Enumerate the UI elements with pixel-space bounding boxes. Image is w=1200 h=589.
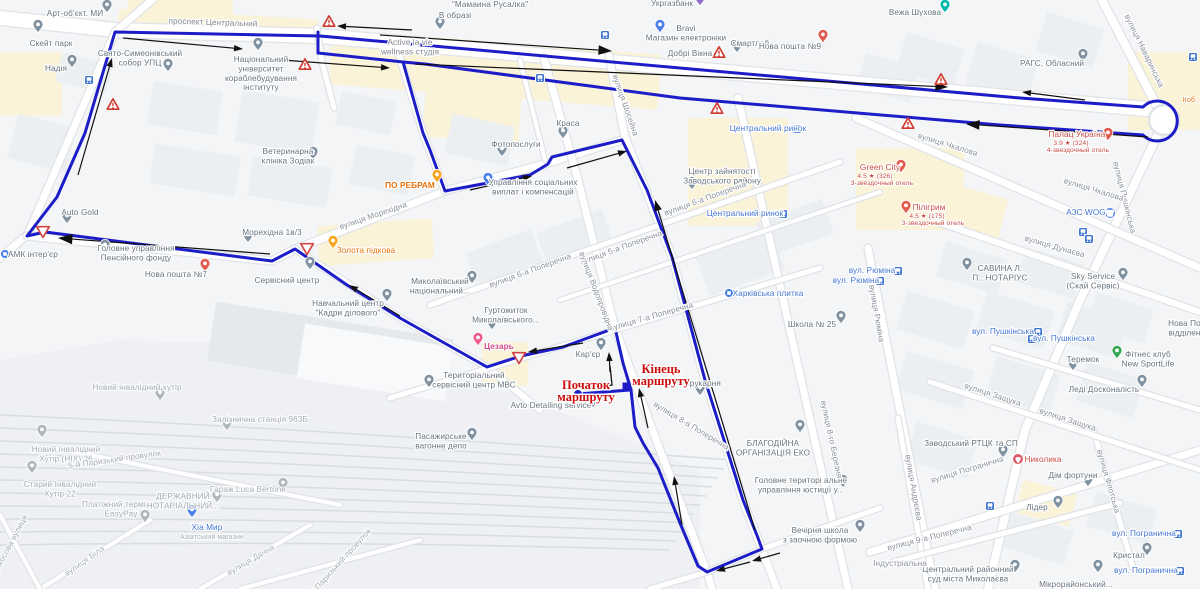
commercial-zone xyxy=(0,52,62,116)
map-label: вул. Пушкінська xyxy=(972,327,1034,336)
map-label: Укргазбанк xyxy=(651,0,693,8)
map-label: Управління соціальнихвиплат і компенсаці… xyxy=(488,178,577,196)
warning-roadwork-icon xyxy=(902,118,914,128)
transit-stop-icon[interactable] xyxy=(85,76,94,85)
poi-pin-dot xyxy=(1056,499,1060,503)
warning-roadwork-icon xyxy=(107,99,119,109)
bus-wheel xyxy=(988,507,990,509)
bus-glyph xyxy=(988,503,993,507)
exclamation-dot xyxy=(112,107,114,109)
bus-wheel xyxy=(1087,240,1089,242)
direction-arrow-head xyxy=(617,150,627,156)
bus-glyph xyxy=(87,77,92,81)
poi-pin-dot xyxy=(438,20,442,24)
map-label: Школа № 25 xyxy=(788,320,837,329)
map-label: Хіа Мир xyxy=(192,523,223,532)
poi-pin-dot xyxy=(965,261,969,265)
poi-pin-dot xyxy=(1140,378,1144,382)
poi-pin[interactable] xyxy=(795,419,805,433)
map-label: Нова пошта №7 xyxy=(145,270,208,279)
transit-stop-icon[interactable] xyxy=(986,502,995,511)
map-label: Миколаївськийнаціональний... xyxy=(410,277,470,295)
street-label: вулиця 7-а Поперечна xyxy=(608,300,694,333)
poi-pin-dot xyxy=(470,431,474,435)
poi-pin-dot xyxy=(1106,131,1110,135)
building-block xyxy=(896,291,975,350)
exclamation-dot xyxy=(718,55,720,57)
bus-glyph xyxy=(1087,236,1092,240)
poi-pin-dot xyxy=(385,292,389,296)
bus-glyph xyxy=(1191,54,1196,58)
map-label: вул. Погранична xyxy=(1112,529,1176,538)
bus-wheel xyxy=(87,81,89,83)
bus-wheel xyxy=(881,282,883,284)
map-label: Головне територі альнеуправління юстиції… xyxy=(755,476,848,494)
poi-pin[interactable] xyxy=(940,0,950,13)
poi-pin-dot xyxy=(1145,546,1149,550)
direction-arrow-head xyxy=(606,352,612,361)
map-label: Ветеринарнаклініка Зодіак xyxy=(262,147,315,165)
poi-pin[interactable] xyxy=(253,37,263,51)
poi-pin-dot xyxy=(427,378,431,382)
poi-pin-dot xyxy=(435,173,439,177)
poi-pin[interactable] xyxy=(836,310,846,324)
shop-glyph xyxy=(3,252,7,256)
transit-stop-icon[interactable] xyxy=(601,31,610,40)
poi-pin-dot xyxy=(70,58,74,62)
poi-pin[interactable] xyxy=(1093,559,1103,573)
poi-pin-dot xyxy=(143,513,147,517)
map-label: Пасажирськевагонне депо xyxy=(415,432,467,450)
poi-pin-dot xyxy=(599,341,603,345)
poi-pin-dot xyxy=(904,204,908,208)
map-label: Вежа Шухова xyxy=(889,8,942,17)
map-label: 3-звездочный отель xyxy=(851,179,914,187)
bus-wheel xyxy=(896,272,898,274)
map-label: 4.5 ★ (326) xyxy=(857,172,892,180)
map-label: Цезарь xyxy=(484,342,514,351)
bus-wheel xyxy=(1191,58,1193,60)
map-label: 3-звездочный отель xyxy=(902,219,965,227)
wog-glyph: W xyxy=(1107,211,1113,217)
poi-pin[interactable] xyxy=(473,332,483,346)
poi-pin-dot xyxy=(821,33,825,37)
map-screenshot: ♥W Арт-об'єкт. МИпроспект ЦентральнийСке… xyxy=(0,0,1200,589)
map-label: Леді Досконалість xyxy=(1069,385,1140,394)
heart-glyph: ♥ xyxy=(1016,458,1020,464)
warning-roadwork-icon xyxy=(713,47,725,57)
map-label: Гараж Luca Bertone xyxy=(210,485,286,494)
poi-pin-dot xyxy=(256,41,260,45)
poi-pin[interactable] xyxy=(33,19,43,33)
poi-pin-dot xyxy=(470,274,474,278)
poi-pin[interactable] xyxy=(1118,267,1128,281)
poi-pin[interactable] xyxy=(163,58,173,72)
transit-stop-icon[interactable] xyxy=(1085,235,1094,244)
poi-pin-dot xyxy=(476,336,480,340)
map-label: Теремок xyxy=(1067,355,1100,364)
fuel-station-icon[interactable]: W xyxy=(1105,208,1116,219)
poi-pin-dot xyxy=(798,423,802,427)
exclamation-dot xyxy=(328,24,330,26)
poi-pin-dot xyxy=(658,23,662,27)
map-label: Заводський РТЦК та СП xyxy=(924,439,1018,448)
map-label: вул. Погранична xyxy=(1114,566,1178,575)
map-label: Сервісний центр xyxy=(255,276,320,285)
bus-wheel xyxy=(1181,572,1183,574)
exclamation-dot xyxy=(940,82,942,84)
direction-arrow-shaft xyxy=(609,361,610,372)
poi-pin-body xyxy=(695,0,705,6)
map-label: Нова пошта №9 xyxy=(759,42,822,51)
route-start-label: Початокмаршруту xyxy=(557,378,615,404)
map-label: Азіатський магазин xyxy=(180,533,244,541)
poi-pin-dot xyxy=(561,129,565,133)
poi-pin-dot xyxy=(30,464,34,468)
map-label: Центральний районнийсуд міста Миколаєва xyxy=(922,565,1013,583)
poi-pin-dot xyxy=(839,314,843,318)
map-label: ГуртожитокМиколаївського... xyxy=(472,306,540,324)
poi-pin-dot xyxy=(36,23,40,27)
poi-pin-dot xyxy=(1001,448,1005,452)
map-label: Мікрорайонський... xyxy=(1039,580,1113,589)
map-label: ДЕРЖАВНИЙНОТАРІАЛЬНИЙ... xyxy=(147,490,220,510)
poi-pin-body xyxy=(940,0,950,13)
heart-badge-icon[interactable]: ♥ xyxy=(1013,454,1024,465)
map-label: Центральний ринок xyxy=(707,209,784,218)
poi-pin[interactable] xyxy=(596,337,606,351)
building-block xyxy=(147,81,223,135)
map-label: ПО РЕБРАМ xyxy=(385,181,435,190)
map-label: 3.9 ★ (324) xyxy=(1053,139,1088,147)
poi-pin-dot xyxy=(331,239,335,243)
map-label: Добрі Вікна xyxy=(668,49,713,58)
shop-glyph xyxy=(727,291,731,295)
map-label: Палац Україна xyxy=(1049,130,1106,139)
bus-glyph xyxy=(896,268,901,272)
bus-wheel xyxy=(1081,233,1083,235)
map-label: Фотопослуги xyxy=(491,140,540,149)
warning-roadwork-icon xyxy=(323,16,335,26)
map-label: В образі xyxy=(439,11,471,20)
warning-roadwork-icon xyxy=(299,59,311,69)
poi-pin[interactable] xyxy=(818,29,828,43)
street-label: Індустріальна xyxy=(873,559,927,568)
poi-pin[interactable] xyxy=(655,19,665,33)
map-label: АМК інтер'єр xyxy=(8,250,58,259)
street-label: Active la viewellness студія xyxy=(380,38,439,56)
bus-glyph xyxy=(1081,229,1086,233)
poi-pin-dot xyxy=(40,428,44,432)
exclamation-dot xyxy=(304,67,306,69)
building-block xyxy=(234,90,319,154)
map-label: Золота підкова xyxy=(337,246,396,255)
warning-roadwork-icon xyxy=(711,103,723,113)
map-label: Харківська плитка xyxy=(733,289,804,298)
map-label: Морехідна 1в/3 xyxy=(242,228,302,237)
map-label: АЗС WOG xyxy=(1066,208,1106,217)
bus-wheel xyxy=(784,215,786,217)
map-label: Пілігрим xyxy=(913,203,946,212)
map-label: Николика xyxy=(1024,455,1061,464)
map-label: Головне управлінняПенсійного фонду xyxy=(97,244,174,262)
map-label: 4.5 ★ (175) xyxy=(909,212,944,220)
map-label: БЛАГОДІЙНАОРГАНІЗАЦІЯ ЕКО xyxy=(736,437,810,457)
map-label: 4-звездочный отель xyxy=(1047,146,1110,154)
map-label: Auto Gold xyxy=(61,208,99,217)
map-label: вул. Пушкінська xyxy=(1033,334,1095,343)
map-label: Кристал xyxy=(1113,551,1145,560)
poi-pin-body xyxy=(102,0,112,13)
map-label: Кар'єр xyxy=(576,350,601,359)
poi-pin-dot xyxy=(1121,271,1125,275)
map-label: вул. Рюміна xyxy=(833,276,880,285)
map-label: Навчальний центр"Кадри ділового" xyxy=(312,299,384,317)
bus-wheel xyxy=(1194,58,1196,60)
map-label: САВИНА Л.П., НОТАРІУС xyxy=(972,264,1027,282)
map-label: Коб... xyxy=(1183,96,1200,104)
map-label: Фітнес клубNew SportLife xyxy=(1122,350,1175,368)
building-block xyxy=(335,91,396,135)
bus-glyph xyxy=(538,75,543,79)
poi-pin-dot xyxy=(1081,52,1085,56)
map-label: Надія xyxy=(45,64,67,73)
bus-wheel xyxy=(606,36,608,38)
route-end-label: Кінецьмаршруту xyxy=(632,362,690,388)
poi-pin[interactable] xyxy=(305,256,315,270)
map-label: Дім фортуни xyxy=(1048,471,1097,480)
bus-glyph xyxy=(603,32,608,36)
poi-pin-dot xyxy=(943,3,947,7)
map-label: Скейт парк xyxy=(30,39,73,48)
poi-pin-dot xyxy=(281,481,285,485)
poi-pin[interactable] xyxy=(695,0,705,6)
bus-wheel xyxy=(991,507,993,509)
direction-arrow-head xyxy=(654,200,661,211)
route-end-marker xyxy=(623,383,630,390)
poi-pin[interactable] xyxy=(102,0,112,13)
poi-pin-dot xyxy=(308,260,312,264)
poi-pin-dot xyxy=(858,523,862,527)
direction-arrow-shaft xyxy=(346,26,412,30)
map-label: "Мамаина Русалка" xyxy=(452,0,528,9)
map-label: Територіальнийсервісний центр МВС xyxy=(432,371,515,389)
map-label: Вечірня школаз заочною формою xyxy=(783,526,857,544)
bus-wheel xyxy=(899,272,901,274)
map-label: Краса xyxy=(556,119,579,128)
poi-pin[interactable] xyxy=(855,519,865,533)
direction-arrow-head xyxy=(337,23,346,29)
map-label: Green City xyxy=(860,163,901,172)
map-label: Лідер xyxy=(1026,503,1048,512)
bus-wheel xyxy=(1030,340,1032,342)
poi-pin-dot xyxy=(203,262,207,266)
bus-wheel xyxy=(603,36,605,38)
map-label: Центральний ринок xyxy=(730,124,807,133)
bus-glyph xyxy=(1178,568,1183,572)
map-label: Sky Service(Скай Сервіс) xyxy=(1066,272,1119,290)
bus-glyph xyxy=(1176,531,1181,535)
bus-glyph xyxy=(1036,329,1041,333)
map-label: Новий інвалідний хутір xyxy=(92,383,182,392)
poi-pin-dot xyxy=(1115,349,1119,353)
map-label: Центр зайнятостіЗаводського району xyxy=(683,167,762,185)
map-label: Залізнична станція 963Б xyxy=(212,415,308,424)
transit-stop-icon[interactable] xyxy=(1189,53,1198,62)
bus-wheel xyxy=(541,79,543,81)
map-label: РАГС, Обласний xyxy=(1020,59,1084,68)
transit-stop-icon[interactable] xyxy=(536,74,545,83)
poi-pin-dot xyxy=(105,3,109,7)
direction-arrow xyxy=(337,23,412,30)
exclamation-dot xyxy=(907,126,909,128)
map-label: вул. Рюміна xyxy=(849,266,896,275)
poi-pin-dot xyxy=(1096,563,1100,567)
direction-arrow-head xyxy=(234,45,243,51)
bus-wheel xyxy=(538,79,540,81)
bus-wheel xyxy=(90,81,92,83)
map-label: Національнийуніверситеткораблебудуванняі… xyxy=(225,55,297,92)
bus-wheel xyxy=(1090,240,1092,242)
map-label: Арт-об'єкт. МИ xyxy=(47,9,103,18)
map-canvas[interactable]: ♥W Арт-об'єкт. МИпроспект ЦентральнийСке… xyxy=(0,0,1200,589)
map-label: Нова По...відділен... xyxy=(1168,319,1200,337)
poi-pin-dot xyxy=(166,62,170,66)
building-block xyxy=(149,144,240,197)
direction-arrow xyxy=(606,352,612,372)
bus-wheel xyxy=(1179,535,1181,537)
exclamation-dot xyxy=(716,111,718,113)
